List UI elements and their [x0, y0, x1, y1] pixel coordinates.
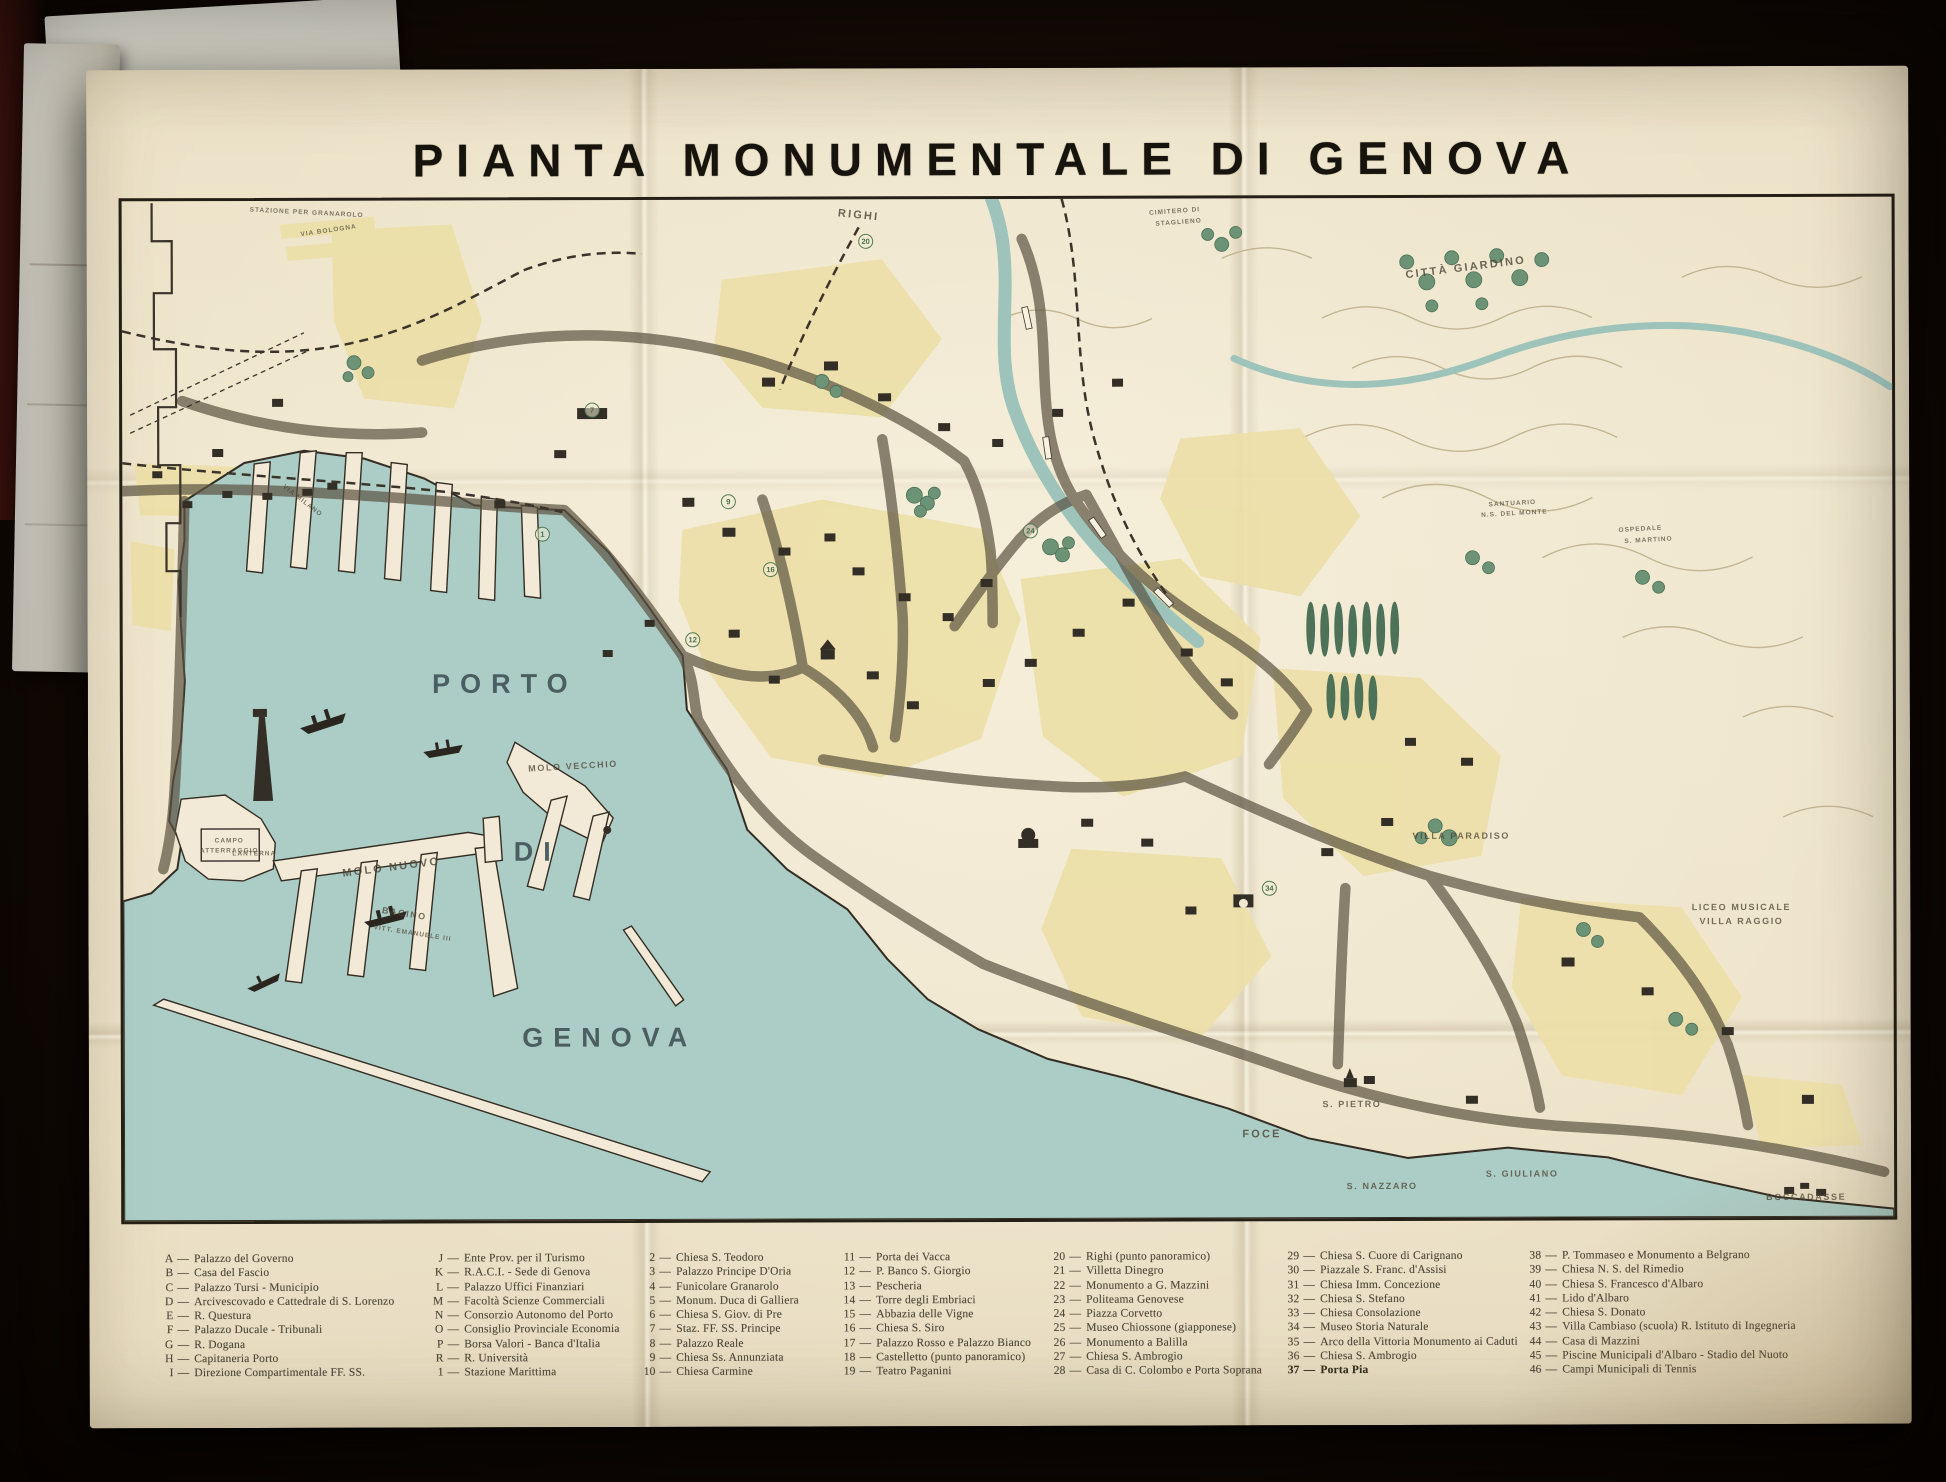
legend-entry-dash: —: [1303, 1264, 1315, 1276]
legend-entry-key: 34: [1280, 1321, 1300, 1335]
legend-entry-dash: —: [1070, 1351, 1082, 1363]
legend-entry: 19—Teatro Paganini: [836, 1364, 1032, 1379]
legend-entry: 40—Chiesa S. Francesco d'Albaro: [1521, 1277, 1795, 1292]
legend-entry: J—Ente Prov. per il Turismo: [423, 1251, 619, 1266]
legend-entry-label: Piazza Corvetto: [1086, 1308, 1162, 1320]
legend-entry-dash: —: [1304, 1322, 1316, 1334]
legend-entry-label: Piazzale S. Franc. d'Assisi: [1320, 1264, 1447, 1276]
legend-entry-dash: —: [178, 1339, 190, 1351]
legend-entry-label: Palazzo Ducale - Tribunali: [194, 1324, 322, 1336]
legend-entry-label: Campi Municipali di Tennis: [1562, 1364, 1696, 1376]
legend-entry-key: 15: [835, 1308, 855, 1322]
legend-entry-label: Chiesa S. Siro: [876, 1323, 944, 1335]
legend-entry: 36—Chiesa S. Ambrogio: [1280, 1349, 1518, 1364]
legend-entry-dash: —: [178, 1353, 190, 1365]
legend-entry-dash: —: [1303, 1250, 1315, 1262]
legend-entry-label: Righi (punto panoramico): [1086, 1250, 1210, 1262]
legend-entry-dash: —: [859, 1309, 871, 1321]
legend-entry-key: R: [424, 1352, 444, 1366]
legend-entry-key: 33: [1279, 1306, 1299, 1320]
legend-entry-key: 2: [635, 1251, 655, 1265]
legend-column: 20—Righi (punto panoramico)21—Villetta D…: [1045, 1249, 1262, 1378]
legend-entry-key: 26: [1046, 1336, 1066, 1350]
map-sheet: PIANTA MONUMENTALE DI GENOVA: [86, 66, 1912, 1429]
legend-entry: H—Capitaneria Porto: [154, 1352, 395, 1367]
legend-entry-label: Castelletto (punto panoramico): [876, 1351, 1025, 1363]
legend-entry: R—R. Università: [424, 1351, 620, 1366]
legend-entry-dash: —: [178, 1325, 190, 1337]
legend-entry: 14—Torre degli Embriaci: [835, 1293, 1031, 1308]
legend-entry-key: 37: [1280, 1364, 1300, 1378]
legend-entry-key: 13: [835, 1279, 855, 1293]
legend-entry-dash: —: [177, 1267, 189, 1279]
legend-entry: 44—Casa di Mazzini: [1522, 1334, 1796, 1349]
legend-entry-dash: —: [447, 1267, 459, 1279]
legend-entry-key: 28: [1046, 1364, 1066, 1378]
legend-entry-dash: —: [1304, 1365, 1316, 1377]
legend-entry-key: P: [424, 1337, 444, 1351]
legend-entry-key: 23: [1045, 1293, 1065, 1307]
legend-entry-label: P. Banco S. Giorgio: [876, 1265, 971, 1277]
legend-entry-label: Chiesa Imm. Concezione: [1320, 1278, 1440, 1290]
legend-entry-dash: —: [448, 1352, 460, 1364]
legend-entry-dash: —: [659, 1309, 671, 1321]
legend-entry-label: Stazione Marittima: [464, 1367, 556, 1379]
legend-entry-label: R. Università: [464, 1352, 528, 1364]
legend-entry: 9—Chiesa Ss. Annunziata: [636, 1351, 800, 1366]
legend-entry-label: Chiesa Ss. Annunziata: [676, 1352, 783, 1364]
legend-entry-key: H: [154, 1352, 174, 1366]
legend-entry-label: Palazzo Rosso e Palazzo Bianco: [876, 1337, 1031, 1349]
legend-entry-key: 36: [1280, 1349, 1300, 1363]
legend-entry: 18—Castelletto (punto panoramico): [836, 1350, 1032, 1365]
legend-entry-dash: —: [859, 1280, 871, 1292]
legend-entry-label: Museo Storia Naturale: [1320, 1321, 1428, 1333]
legend-entry-key: N: [423, 1309, 443, 1323]
legend-entry-label: Casa di C. Colombo e Porta Soprana: [1086, 1365, 1262, 1377]
legend-entry-dash: —: [1304, 1350, 1316, 1362]
legend-entry-dash: —: [660, 1323, 672, 1335]
legend-entry-key: 1: [424, 1366, 444, 1380]
legend-entry-dash: —: [660, 1352, 672, 1364]
legend-entry-label: Chiesa S. Francesco d'Albaro: [1562, 1278, 1703, 1290]
legend-column: 11—Porta dei Vacca12—P. Banco S. Giorgio…: [835, 1250, 1031, 1379]
legend-entry-dash: —: [1545, 1250, 1557, 1262]
legend-entry-key: 8: [636, 1337, 656, 1351]
legend-entry-label: Arco della Vittoria Monumento ai Caduti: [1320, 1335, 1518, 1348]
legend-entry-dash: —: [1304, 1336, 1316, 1348]
legend-entry-key: 10: [636, 1365, 656, 1379]
legend-entry-dash: —: [448, 1367, 460, 1379]
legend-entry-label: Casa del Fascio: [194, 1267, 269, 1279]
legend-entry-label: R. Dogana: [194, 1339, 245, 1351]
legend-entry-label: Porta Pia: [1320, 1364, 1368, 1376]
legend-entry: 23—Politeama Genovese: [1045, 1292, 1262, 1307]
legend-entry: 34—Museo Storia Naturale: [1280, 1320, 1518, 1335]
legend-entry-label: Borsa Valori - Banca d'Italia: [464, 1338, 600, 1350]
legend-entry-label: Consiglio Provinciale Economia: [464, 1323, 620, 1335]
legend-entry-label: Lido d'Albaro: [1562, 1292, 1629, 1304]
legend-entry-label: Chiesa S. Teodoro: [676, 1252, 764, 1264]
legend-entry-dash: —: [1070, 1322, 1082, 1334]
legend-entry: L—Palazzo Uffici Finanziari: [423, 1280, 619, 1295]
legend-entry: 11—Porta dei Vacca: [835, 1250, 1031, 1265]
legend-entry-dash: —: [860, 1337, 872, 1349]
legend-entry-key: F: [154, 1324, 174, 1338]
legend-entry: 30—Piazzale S. Franc. d'Assisi: [1279, 1263, 1517, 1278]
legend-entry-dash: —: [1545, 1264, 1557, 1276]
legend-entry-dash: —: [860, 1323, 872, 1335]
legend-entry-key: 5: [635, 1294, 655, 1308]
legend-entry: 15—Abbazia delle Vigne: [835, 1307, 1031, 1322]
legend-entry-label: Ente Prov. per il Turismo: [464, 1252, 585, 1264]
legend-entry: A—Palazzo del Governo: [153, 1252, 394, 1267]
legend-entry-label: Chiesa S. Stefano: [1320, 1293, 1405, 1305]
legend-entry-key: 4: [635, 1279, 655, 1293]
legend-entry-key: 31: [1279, 1278, 1299, 1292]
legend-entry-label: Monumento a G. Mazzini: [1086, 1279, 1209, 1291]
legend-entry-label: Funicolare Granarolo: [676, 1280, 779, 1292]
legend-entry: 45—Piscine Municipali d'Albaro - Stadio …: [1522, 1348, 1796, 1363]
legend-entry: 28—Casa di C. Colombo e Porta Soprana: [1046, 1364, 1263, 1379]
legend-entry-key: 30: [1279, 1264, 1299, 1278]
legend-entry-dash: —: [1303, 1293, 1315, 1305]
legend-column: 38—P. Tommaseo e Monumento a Belgrano39—…: [1521, 1248, 1796, 1377]
legend-entry: 37—Porta Pia: [1280, 1363, 1518, 1378]
legend-entry-label: Palazzo Tursi - Municipio: [194, 1281, 319, 1293]
legend-entry: 35—Arco della Vittoria Monumento ai Cadu…: [1280, 1334, 1518, 1349]
legend-entry: 39—Chiesa N. S. del Rimedio: [1521, 1262, 1795, 1277]
legend-column: 2—Chiesa S. Teodoro3—Palazzo Principe D'…: [635, 1251, 799, 1380]
legend-entry: 5—Monum. Duca di Galliera: [635, 1293, 799, 1308]
legend-entry-dash: —: [860, 1351, 872, 1363]
legend-entry-key: D: [153, 1295, 173, 1309]
legend-entry-dash: —: [1546, 1321, 1558, 1333]
legend-entry-key: 20: [1045, 1250, 1065, 1264]
legend-entry-label: Museo Chiossone (giapponese): [1086, 1322, 1236, 1334]
legend-entry: 10—Chiesa Carmine: [636, 1365, 800, 1380]
legend-entry-label: Chiesa Carmine: [676, 1366, 753, 1378]
legend-entry: 32—Chiesa S. Stefano: [1279, 1292, 1517, 1307]
legend-entry-key: 6: [635, 1308, 655, 1322]
legend-entry-dash: —: [1070, 1337, 1082, 1349]
legend-entry-key: 46: [1522, 1363, 1542, 1377]
legend-entry-dash: —: [1545, 1278, 1557, 1290]
legend-entry-key: A: [153, 1252, 173, 1266]
legend-entry-key: 32: [1279, 1292, 1299, 1306]
map-frame: PORTODIGENOVAMOLO NUOVOBACINOVITT. EMANU…: [119, 194, 1898, 1225]
legend-entry: 1—Stazione Marittima: [424, 1365, 620, 1380]
legend-entry-key: 9: [636, 1351, 656, 1365]
legend-entry: 29—Chiesa S. Cuore di Carignano: [1279, 1249, 1517, 1264]
legend-entry-key: 12: [835, 1265, 855, 1279]
legend-entry-label: P. Tommaseo e Monumento a Belgrano: [1562, 1249, 1750, 1261]
legend-entry-dash: —: [1546, 1335, 1558, 1347]
legend-entry-label: Pescheria: [876, 1280, 922, 1292]
legend: A—Palazzo del GovernoB—Casa del FascioC—…: [89, 1248, 1911, 1403]
legend-entry-dash: —: [1070, 1365, 1082, 1377]
legend-entry: O—Consiglio Provinciale Economia: [424, 1322, 620, 1337]
legend-entry: 31—Chiesa Imm. Concezione: [1279, 1277, 1517, 1292]
legend-entry-key: I: [154, 1367, 174, 1381]
legend-entry-key: 3: [635, 1265, 655, 1279]
legend-entry-dash: —: [1069, 1308, 1081, 1320]
legend-entry: 13—Pescheria: [835, 1279, 1031, 1294]
legend-entry-key: K: [423, 1266, 443, 1280]
legend-entry-label: Chiesa S. Cuore di Carignano: [1320, 1250, 1463, 1262]
map-title: PIANTA MONUMENTALE DI GENOVA: [86, 130, 1908, 189]
legend-entry-key: 45: [1522, 1349, 1542, 1363]
legend-entry-key: 14: [835, 1293, 855, 1307]
legend-entry-dash: —: [1303, 1307, 1315, 1319]
legend-entry: N—Consorzio Autonomo del Porto: [423, 1308, 619, 1323]
legend-entry-label: Palazzo Uffici Finanziari: [464, 1281, 584, 1293]
legend-entry-key: 24: [1045, 1307, 1065, 1321]
legend-entry-dash: —: [448, 1338, 460, 1350]
legend-entry-label: Chiesa N. S. del Rimedio: [1562, 1264, 1684, 1276]
map-artwork: [122, 197, 1895, 1222]
legend-entry-label: Chiesa S. Ambrogio: [1086, 1351, 1183, 1363]
legend-entry: 8—Palazzo Reale: [636, 1336, 800, 1351]
legend-entry: 25—Museo Chiossone (giapponese): [1046, 1321, 1263, 1336]
legend-column: A—Palazzo del GovernoB—Casa del FascioC—…: [153, 1252, 394, 1381]
legend-entry-label: Abbazia delle Vigne: [876, 1308, 973, 1320]
legend-entry-dash: —: [659, 1280, 671, 1292]
legend-entry: 26—Monumento a Balilla: [1046, 1335, 1263, 1350]
photo-background: PIANTA MONUMENTALE DI GENOVA: [0, 0, 1946, 1482]
legend-entry-dash: —: [659, 1295, 671, 1307]
legend-entry-label: Villetta Dinegro: [1086, 1265, 1164, 1277]
legend-entry-key: 39: [1521, 1263, 1541, 1277]
legend-entry-dash: —: [447, 1295, 459, 1307]
legend-entry-label: Arcivescovado e Cattedrale di S. Lorenzo: [194, 1295, 394, 1308]
legend-entry-dash: —: [1546, 1350, 1558, 1362]
legend-entry-label: Chiesa S. Donato: [1562, 1306, 1645, 1318]
legend-entry-key: 40: [1521, 1277, 1541, 1291]
legend-entry-key: 42: [1521, 1306, 1541, 1320]
legend-entry: 46—Campi Municipali di Tennis: [1522, 1362, 1796, 1377]
legend-entry-dash: —: [448, 1324, 460, 1336]
legend-entry-key: 21: [1045, 1264, 1065, 1278]
legend-entry-dash: —: [1546, 1364, 1558, 1376]
legend-entry: 42—Chiesa S. Donato: [1521, 1305, 1795, 1320]
legend-entry: G—R. Dogana: [154, 1337, 395, 1352]
legend-entry: 22—Monumento a G. Mazzini: [1045, 1278, 1262, 1293]
legend-entry-dash: —: [447, 1252, 459, 1264]
legend-entry: P—Borsa Valori - Banca d'Italia: [424, 1337, 620, 1352]
legend-entry-dash: —: [178, 1367, 190, 1379]
legend-entry-key: L: [423, 1280, 443, 1294]
legend-entry-label: Villa Cambiaso (scuola) R. Istituto di I…: [1562, 1320, 1796, 1333]
legend-entry-label: Facoltà Scienze Commerciali: [464, 1295, 605, 1307]
legend-column: J—Ente Prov. per il TurismoK—R.A.C.I. - …: [423, 1251, 620, 1380]
legend-entry-key: 22: [1045, 1278, 1065, 1292]
legend-entry-label: Torre degli Embriaci: [876, 1294, 976, 1306]
legend-entry-dash: —: [1545, 1292, 1557, 1304]
legend-entry-label: Porta dei Vacca: [876, 1251, 950, 1263]
legend-entry-dash: —: [659, 1252, 671, 1264]
legend-entry-dash: —: [1069, 1265, 1081, 1277]
legend-entry-dash: —: [1545, 1307, 1557, 1319]
legend-entry-dash: —: [1303, 1279, 1315, 1291]
legend-entry-dash: —: [1069, 1279, 1081, 1291]
legend-entry-dash: —: [660, 1366, 672, 1378]
legend-entry-key: 7: [636, 1322, 656, 1336]
legend-entry: 3—Palazzo Principe D'Oria: [635, 1265, 799, 1280]
legend-entry: D—Arcivescovado e Cattedrale di S. Loren…: [153, 1294, 394, 1309]
legend-entry-label: Palazzo Principe D'Oria: [676, 1266, 791, 1278]
legend-entry-label: Teatro Paganini: [876, 1366, 951, 1378]
legend-entry-dash: —: [177, 1253, 189, 1265]
legend-entry-dash: —: [860, 1366, 872, 1378]
legend-entry: 43—Villa Cambiaso (scuola) R. Istituto d…: [1522, 1319, 1796, 1334]
legend-entry-dash: —: [447, 1310, 459, 1322]
legend-entry: F—Palazzo Ducale - Tribunali: [154, 1323, 395, 1338]
legend-entry-dash: —: [447, 1281, 459, 1293]
legend-entry: 4—Funicolare Granarolo: [635, 1279, 799, 1294]
legend-entry-dash: —: [859, 1294, 871, 1306]
legend-entry-key: 16: [836, 1322, 856, 1336]
legend-entry-key: O: [424, 1323, 444, 1337]
legend-entry: 20—Righi (punto panoramico): [1045, 1249, 1262, 1264]
legend-entry-dash: —: [659, 1266, 671, 1278]
legend-entry-dash: —: [859, 1266, 871, 1278]
legend-entry-dash: —: [177, 1296, 189, 1308]
legend-entry-key: 35: [1280, 1335, 1300, 1349]
legend-entry-key: 25: [1046, 1321, 1066, 1335]
legend-entry-label: Piscine Municipali d'Albaro - Stadio del…: [1562, 1349, 1788, 1362]
legend-entry-key: 19: [836, 1365, 856, 1379]
legend-entry-label: R.A.C.I. - Sede di Genova: [464, 1266, 590, 1278]
legend-entry-key: 17: [836, 1336, 856, 1350]
legend-entry: 7—Staz. FF. SS. Principe: [636, 1322, 800, 1337]
legend-entry: I—Direzione Compartimentale FF. SS.: [154, 1366, 395, 1381]
legend-entry-dash: —: [660, 1338, 672, 1350]
legend-entry-label: Palazzo del Governo: [194, 1253, 294, 1265]
legend-entry: 24—Piazza Corvetto: [1045, 1307, 1262, 1322]
legend-entry-label: Chiesa S. Ambrogio: [1320, 1350, 1417, 1362]
legend-entry: 38—P. Tommaseo e Monumento a Belgrano: [1521, 1248, 1795, 1263]
legend-entry: B—Casa del Fascio: [153, 1266, 394, 1281]
legend-entry: 17—Palazzo Rosso e Palazzo Bianco: [836, 1336, 1032, 1351]
legend-entry-key: 41: [1521, 1291, 1541, 1305]
legend-entry-key: 18: [836, 1350, 856, 1364]
legend-entry-dash: —: [1069, 1294, 1081, 1306]
legend-entry-label: Monum. Duca di Galliera: [676, 1294, 799, 1306]
legend-entry-key: 43: [1522, 1320, 1542, 1334]
legend-entry: 2—Chiesa S. Teodoro: [635, 1251, 799, 1266]
legend-entry-label: Chiesa S. Giov. di Pre: [676, 1309, 782, 1321]
legend-entry-key: J: [423, 1251, 443, 1265]
legend-entry-label: Palazzo Reale: [676, 1337, 743, 1349]
legend-entry-label: Direzione Compartimentale FF. SS.: [194, 1367, 365, 1379]
legend-entry-dash: —: [177, 1310, 189, 1322]
legend-entry: M—Facoltà Scienze Commerciali: [423, 1294, 619, 1309]
legend-entry-label: Capitaneria Porto: [194, 1353, 278, 1365]
legend-entry-dash: —: [1069, 1251, 1081, 1263]
legend-entry-key: 27: [1046, 1350, 1066, 1364]
legend-entry-label: Monumento a Balilla: [1086, 1336, 1188, 1348]
legend-entry: 27—Chiesa S. Ambrogio: [1046, 1349, 1263, 1364]
legend-entry: 16—Chiesa S. Siro: [836, 1321, 1032, 1336]
legend-entry: 33—Chiesa Consolazione: [1279, 1306, 1517, 1321]
legend-entry: 41—Lido d'Albaro: [1521, 1291, 1795, 1306]
legend-entry-key: E: [153, 1309, 173, 1323]
legend-entry: C—Palazzo Tursi - Municipio: [153, 1280, 394, 1295]
legend-entry-label: Chiesa Consolazione: [1320, 1307, 1421, 1319]
legend-entry-key: B: [153, 1266, 173, 1280]
legend-entry-key: C: [153, 1281, 173, 1295]
legend-entry-key: 38: [1521, 1249, 1541, 1263]
legend-entry-key: G: [154, 1338, 174, 1352]
legend-entry: E—R. Questura: [153, 1309, 394, 1324]
legend-entry-dash: —: [859, 1251, 871, 1263]
legend-column: 29—Chiesa S. Cuore di Carignano30—Piazza…: [1279, 1249, 1518, 1378]
legend-entry: 21—Villetta Dinegro: [1045, 1264, 1262, 1279]
legend-entry-key: 11: [835, 1250, 855, 1264]
legend-entry-dash: —: [177, 1282, 189, 1294]
legend-entry-label: Consorzio Autonomo del Porto: [464, 1309, 613, 1321]
legend-entry-key: 29: [1279, 1249, 1299, 1263]
legend-entry: 12—P. Banco S. Giorgio: [835, 1264, 1031, 1279]
legend-entry: K—R.A.C.I. - Sede di Genova: [423, 1265, 619, 1280]
legend-entry-key: 44: [1522, 1334, 1542, 1348]
legend-entry-label: Casa di Mazzini: [1562, 1335, 1640, 1347]
legend-entry-key: M: [423, 1294, 443, 1308]
legend-entry-label: R. Questura: [194, 1310, 251, 1322]
legend-entry: 6—Chiesa S. Giov. di Pre: [635, 1308, 799, 1323]
legend-entry-label: Politeama Genovese: [1086, 1293, 1184, 1305]
legend-entry-label: Staz. FF. SS. Principe: [676, 1323, 780, 1335]
